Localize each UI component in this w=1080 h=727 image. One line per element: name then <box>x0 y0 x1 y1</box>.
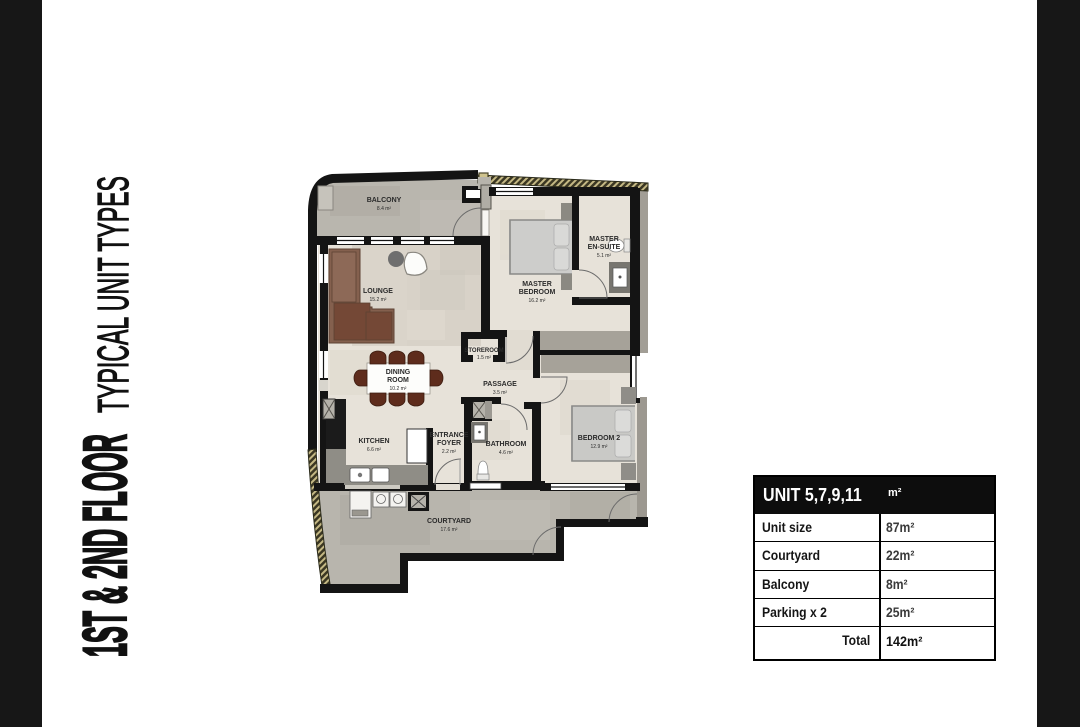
svg-text:STOREROOM: STOREROOM <box>464 348 503 354</box>
svg-text:6.6 m²: 6.6 m² <box>367 447 382 453</box>
svg-text:COURTYARD: COURTYARD <box>427 518 471 525</box>
svg-text:EN-SUITE: EN-SUITE <box>588 244 621 251</box>
svg-text:DINING: DINING <box>386 369 411 376</box>
svg-text:BATHROOM: BATHROOM <box>486 441 527 448</box>
svg-text:KITCHEN: KITCHEN <box>358 438 389 445</box>
svg-text:MASTER: MASTER <box>589 236 619 243</box>
svg-text:ROOM: ROOM <box>387 377 409 384</box>
svg-text:2.2 m²: 2.2 m² <box>442 449 457 455</box>
svg-text:BEDROOM: BEDROOM <box>519 289 556 296</box>
svg-text:15.2 m²: 15.2 m² <box>370 297 387 303</box>
svg-text:MASTER: MASTER <box>522 281 552 288</box>
svg-text:PASSAGE: PASSAGE <box>483 381 517 388</box>
svg-text:BEDROOM 2: BEDROOM 2 <box>578 435 621 442</box>
svg-text:16.2 m²: 16.2 m² <box>529 298 546 304</box>
svg-text:FOYER: FOYER <box>437 440 461 447</box>
svg-text:LOUNGE: LOUNGE <box>363 288 393 295</box>
svg-text:17.6 m²: 17.6 m² <box>441 527 458 533</box>
svg-text:8.4 m²: 8.4 m² <box>377 206 392 212</box>
svg-text:5.1 m²: 5.1 m² <box>597 253 612 259</box>
svg-text:12.9 m²: 12.9 m² <box>591 444 608 450</box>
svg-text:10.2 m²: 10.2 m² <box>390 386 407 392</box>
svg-text:1.5 m²: 1.5 m² <box>477 355 492 361</box>
svg-text:3.5 m²: 3.5 m² <box>493 390 508 396</box>
svg-text:ENTRANCE: ENTRANCE <box>430 432 469 439</box>
svg-text:BALCONY: BALCONY <box>367 197 402 204</box>
svg-text:4.6 m²: 4.6 m² <box>499 450 514 456</box>
